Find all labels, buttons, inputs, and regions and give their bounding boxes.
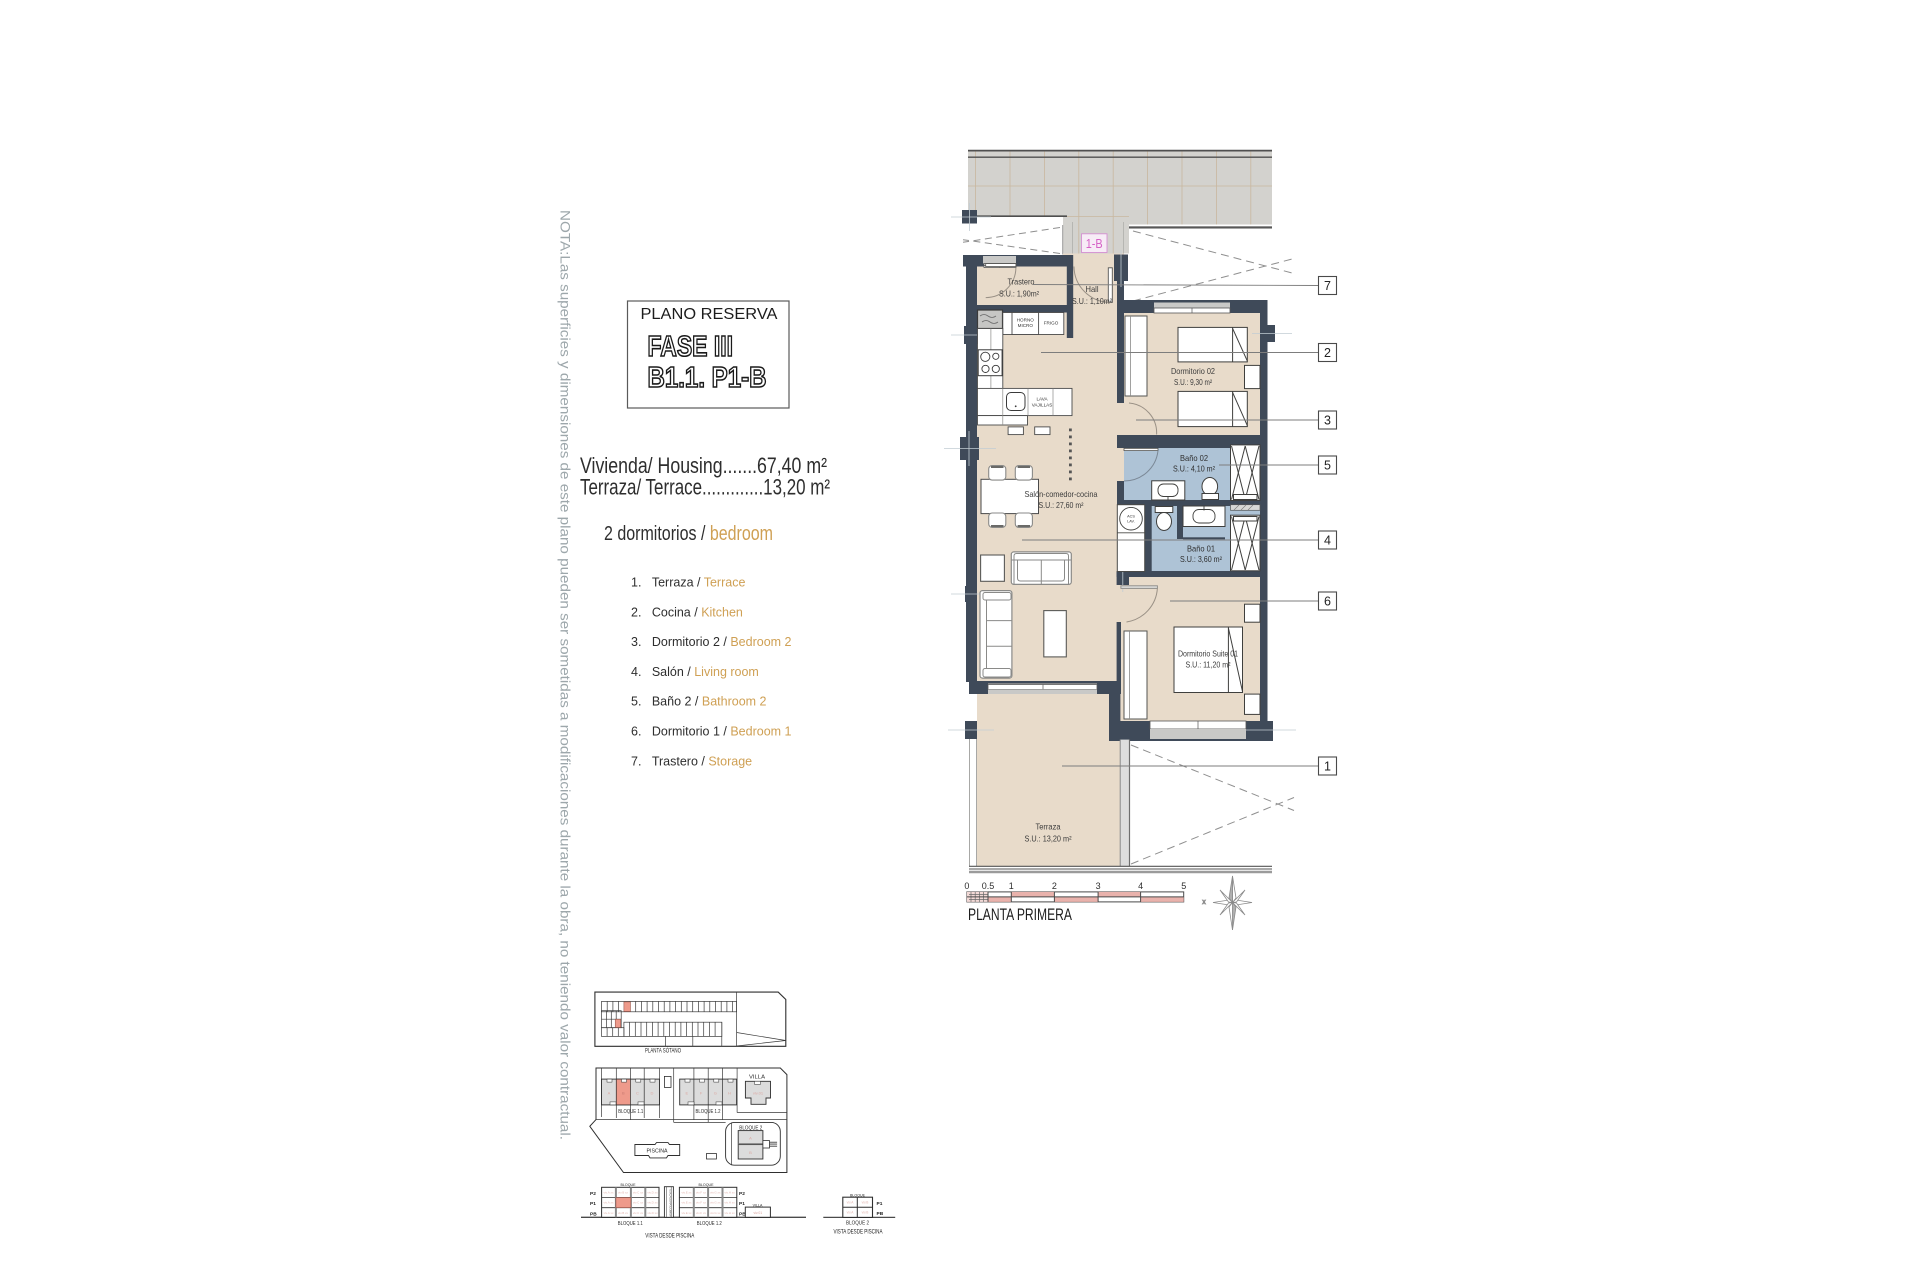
svg-text:B1.1. P1-B: B1.1. P1-B bbox=[648, 362, 767, 394]
svg-text:7: 7 bbox=[1324, 279, 1331, 293]
svg-text:2: 2 bbox=[1052, 881, 1057, 891]
svg-text:0: 0 bbox=[964, 881, 969, 891]
svg-text:D: D bbox=[650, 1091, 653, 1096]
svg-text:Trastero: Trastero bbox=[1008, 277, 1035, 287]
svg-text:4: 4 bbox=[1324, 534, 1331, 548]
svg-text:Hall: Hall bbox=[1086, 284, 1099, 294]
svg-text:2. Cocina / Kitchen: 2. Cocina / Kitchen bbox=[631, 605, 743, 619]
svg-text:4. Salón / Living room: 4. Salón / Living room bbox=[631, 665, 759, 679]
svg-text:PLANTA SÓTANO: PLANTA SÓTANO bbox=[645, 1046, 681, 1055]
svg-text:C: C bbox=[636, 1091, 639, 1096]
svg-text:S.U.: 9,30 m²: S.U.: 9,30 m² bbox=[1174, 378, 1212, 387]
svg-text:S.U.: 1,90m²: S.U.: 1,90m² bbox=[999, 290, 1039, 299]
svg-text:BLOQUE 2: BLOQUE 2 bbox=[846, 1221, 869, 1227]
svg-text:S.U.: 27,60 m²: S.U.: 27,60 m² bbox=[1039, 501, 1084, 510]
svg-text:ESCALERA COMUN: ESCALERA COMUN bbox=[668, 1190, 672, 1218]
svg-text:viv.A: viv.A bbox=[847, 1210, 855, 1214]
svg-text:S.U.: 1,10m²: S.U.: 1,10m² bbox=[1072, 297, 1112, 306]
svg-text:HORNO: HORNO bbox=[1017, 318, 1035, 323]
svg-text:0.5: 0.5 bbox=[982, 881, 995, 891]
svg-text:E: E bbox=[685, 1091, 688, 1096]
svg-text:viv.D xx: viv.D xx bbox=[647, 1211, 658, 1215]
svg-text:2 dormitorios / bedroom: 2 dormitorios / bedroom bbox=[604, 523, 773, 545]
svg-text:viv.B: viv.B bbox=[862, 1210, 869, 1214]
svg-text:viv.B: viv.B bbox=[862, 1200, 869, 1204]
svg-text:7. Trastero / Storage: 7. Trastero / Storage bbox=[631, 754, 752, 768]
svg-text:PB: PB bbox=[877, 1211, 884, 1217]
svg-text:BLOQUE 1.1: BLOQUE 1.1 bbox=[618, 1221, 643, 1227]
svg-text:2: 2 bbox=[1324, 346, 1331, 360]
svg-text:VISTA DESDE PISCINA: VISTA DESDE PISCINA bbox=[834, 1229, 884, 1236]
svg-text:viv.E xx: viv.E xx bbox=[681, 1191, 692, 1195]
svg-text:viv.G xx: viv.G xx bbox=[710, 1191, 721, 1195]
svg-text:H: H bbox=[728, 1091, 731, 1096]
svg-text:viv.G xx: viv.G xx bbox=[710, 1201, 721, 1205]
svg-text:S.U.: 11,20 m²: S.U.: 11,20 m² bbox=[1186, 661, 1231, 670]
svg-text:Dormitorio Suite 01: Dormitorio Suite 01 bbox=[1178, 649, 1238, 659]
svg-text:viv.D xx: viv.D xx bbox=[647, 1191, 658, 1195]
svg-text:3: 3 bbox=[1324, 414, 1331, 428]
svg-text:6. Dormitorio 1 / Bedroom 1: 6. Dormitorio 1 / Bedroom 1 bbox=[631, 725, 792, 739]
svg-text:viv.E xx: viv.E xx bbox=[681, 1201, 692, 1205]
svg-text:viv.C xx: viv.C xx bbox=[633, 1191, 644, 1195]
svg-text:S.U.: 3,60 m²: S.U.: 3,60 m² bbox=[1180, 555, 1222, 564]
svg-text:viv.B xx: viv.B xx bbox=[618, 1191, 629, 1195]
svg-text:Terraza: Terraza bbox=[1036, 822, 1061, 832]
svg-text:P1: P1 bbox=[590, 1201, 596, 1207]
svg-text:viv.H xx: viv.H xx bbox=[724, 1201, 735, 1205]
svg-text:viv.F xx: viv.F xx bbox=[696, 1211, 706, 1215]
svg-text:x: x bbox=[1202, 899, 1206, 906]
svg-text:B: B bbox=[749, 1150, 752, 1155]
svg-text:NOTA:Las superficies y dimensi: NOTA:Las superficies y dimensiones de es… bbox=[557, 210, 573, 1140]
svg-text:viv.B xx: viv.B xx bbox=[618, 1211, 629, 1215]
svg-text:PLANTA PRIMERA: PLANTA PRIMERA bbox=[968, 905, 1072, 924]
svg-text:viv.F xx: viv.F xx bbox=[696, 1191, 706, 1195]
svg-text:viv.A: viv.A bbox=[847, 1200, 855, 1204]
svg-text:3: 3 bbox=[1096, 881, 1101, 891]
svg-text:P1: P1 bbox=[739, 1201, 745, 1207]
svg-text:BLOQUE 1.1: BLOQUE 1.1 bbox=[618, 1109, 643, 1115]
svg-text:B: B bbox=[622, 1091, 625, 1096]
svg-text:viv.C xx: viv.C xx bbox=[633, 1201, 644, 1205]
svg-text:PLANO RESERVA: PLANO RESERVA bbox=[641, 306, 778, 323]
svg-text:PISCINA: PISCINA bbox=[647, 1149, 668, 1155]
svg-text:P2: P2 bbox=[739, 1191, 745, 1197]
svg-text:S.U.: 13,20 m²: S.U.: 13,20 m² bbox=[1025, 835, 1072, 844]
svg-text:viv.C xx: viv.C xx bbox=[633, 1211, 644, 1215]
svg-text:6: 6 bbox=[1324, 595, 1331, 609]
svg-text:viv.G xx: viv.G xx bbox=[710, 1211, 721, 1215]
svg-text:1: 1 bbox=[1009, 881, 1014, 891]
svg-text:1-B: 1-B bbox=[1086, 236, 1103, 251]
svg-text:viv.H xx: viv.H xx bbox=[724, 1191, 735, 1195]
svg-text:BLOQUE: BLOQUE bbox=[699, 1183, 715, 1187]
svg-text:viv.E xx: viv.E xx bbox=[681, 1211, 692, 1215]
svg-text:viv.01: viv.01 bbox=[753, 1091, 764, 1096]
svg-text:BLOQUE 1.2: BLOQUE 1.2 bbox=[697, 1221, 722, 1227]
svg-text:LAVA: LAVA bbox=[1036, 397, 1048, 402]
svg-text:5. Baño 2 / Bathroom 2: 5. Baño 2 / Bathroom 2 bbox=[631, 695, 767, 709]
svg-text:viv.01: viv.01 bbox=[753, 1211, 762, 1215]
svg-text:viv.D xx: viv.D xx bbox=[647, 1201, 658, 1205]
svg-text:5: 5 bbox=[1181, 881, 1186, 891]
svg-text:MICRO: MICRO bbox=[1018, 323, 1034, 328]
svg-text:FASE III: FASE III bbox=[648, 331, 734, 363]
svg-text:BLOQUE 1.2: BLOQUE 1.2 bbox=[696, 1109, 721, 1115]
svg-text:3. Dormitorio 2 / Bedroom 2: 3. Dormitorio 2 / Bedroom 2 bbox=[631, 635, 792, 649]
svg-text:viv.A xx: viv.A xx bbox=[604, 1211, 614, 1215]
svg-text:BLOQUE: BLOQUE bbox=[621, 1183, 637, 1187]
svg-text:VISTA DESDE PISCINA: VISTA DESDE PISCINA bbox=[645, 1233, 695, 1240]
svg-text:A: A bbox=[749, 1136, 752, 1141]
svg-text:viv.F xx: viv.F xx bbox=[696, 1201, 706, 1205]
svg-text:VILLA: VILLA bbox=[749, 1075, 765, 1081]
svg-text:1. Terraza / Terrace: 1. Terraza / Terrace bbox=[631, 576, 745, 590]
svg-text:P2: P2 bbox=[590, 1191, 596, 1197]
svg-text:VAJILLAS: VAJILLAS bbox=[1032, 402, 1053, 407]
svg-text:Dormitorio 02: Dormitorio 02 bbox=[1171, 366, 1215, 376]
svg-text:PB: PB bbox=[590, 1211, 597, 1217]
svg-text:A: A bbox=[608, 1091, 611, 1096]
svg-text:Baño 02: Baño 02 bbox=[1180, 453, 1208, 463]
svg-text:Salón-comedor-cocina: Salón-comedor-cocina bbox=[1025, 489, 1098, 499]
svg-text:Baño 01: Baño 01 bbox=[1187, 544, 1215, 554]
svg-text:G: G bbox=[714, 1091, 717, 1096]
svg-text:1: 1 bbox=[1324, 760, 1331, 774]
svg-text:LAV.: LAV. bbox=[1127, 519, 1135, 523]
svg-text:viv.A xx: viv.A xx bbox=[604, 1191, 614, 1195]
svg-text:viv.H xx: viv.H xx bbox=[724, 1211, 735, 1215]
svg-text:FRIGO: FRIGO bbox=[1044, 321, 1059, 326]
svg-text:P1: P1 bbox=[877, 1201, 883, 1207]
svg-text:Terraza/ Terrace.............1: Terraza/ Terrace.............13,20 m² bbox=[580, 475, 830, 500]
svg-text:4: 4 bbox=[1138, 881, 1143, 891]
svg-text:ACS: ACS bbox=[1127, 515, 1135, 519]
svg-text:S.U.: 4,10 m²: S.U.: 4,10 m² bbox=[1173, 465, 1215, 474]
svg-text:5: 5 bbox=[1324, 459, 1331, 473]
svg-text:viv.A xx: viv.A xx bbox=[604, 1201, 614, 1205]
